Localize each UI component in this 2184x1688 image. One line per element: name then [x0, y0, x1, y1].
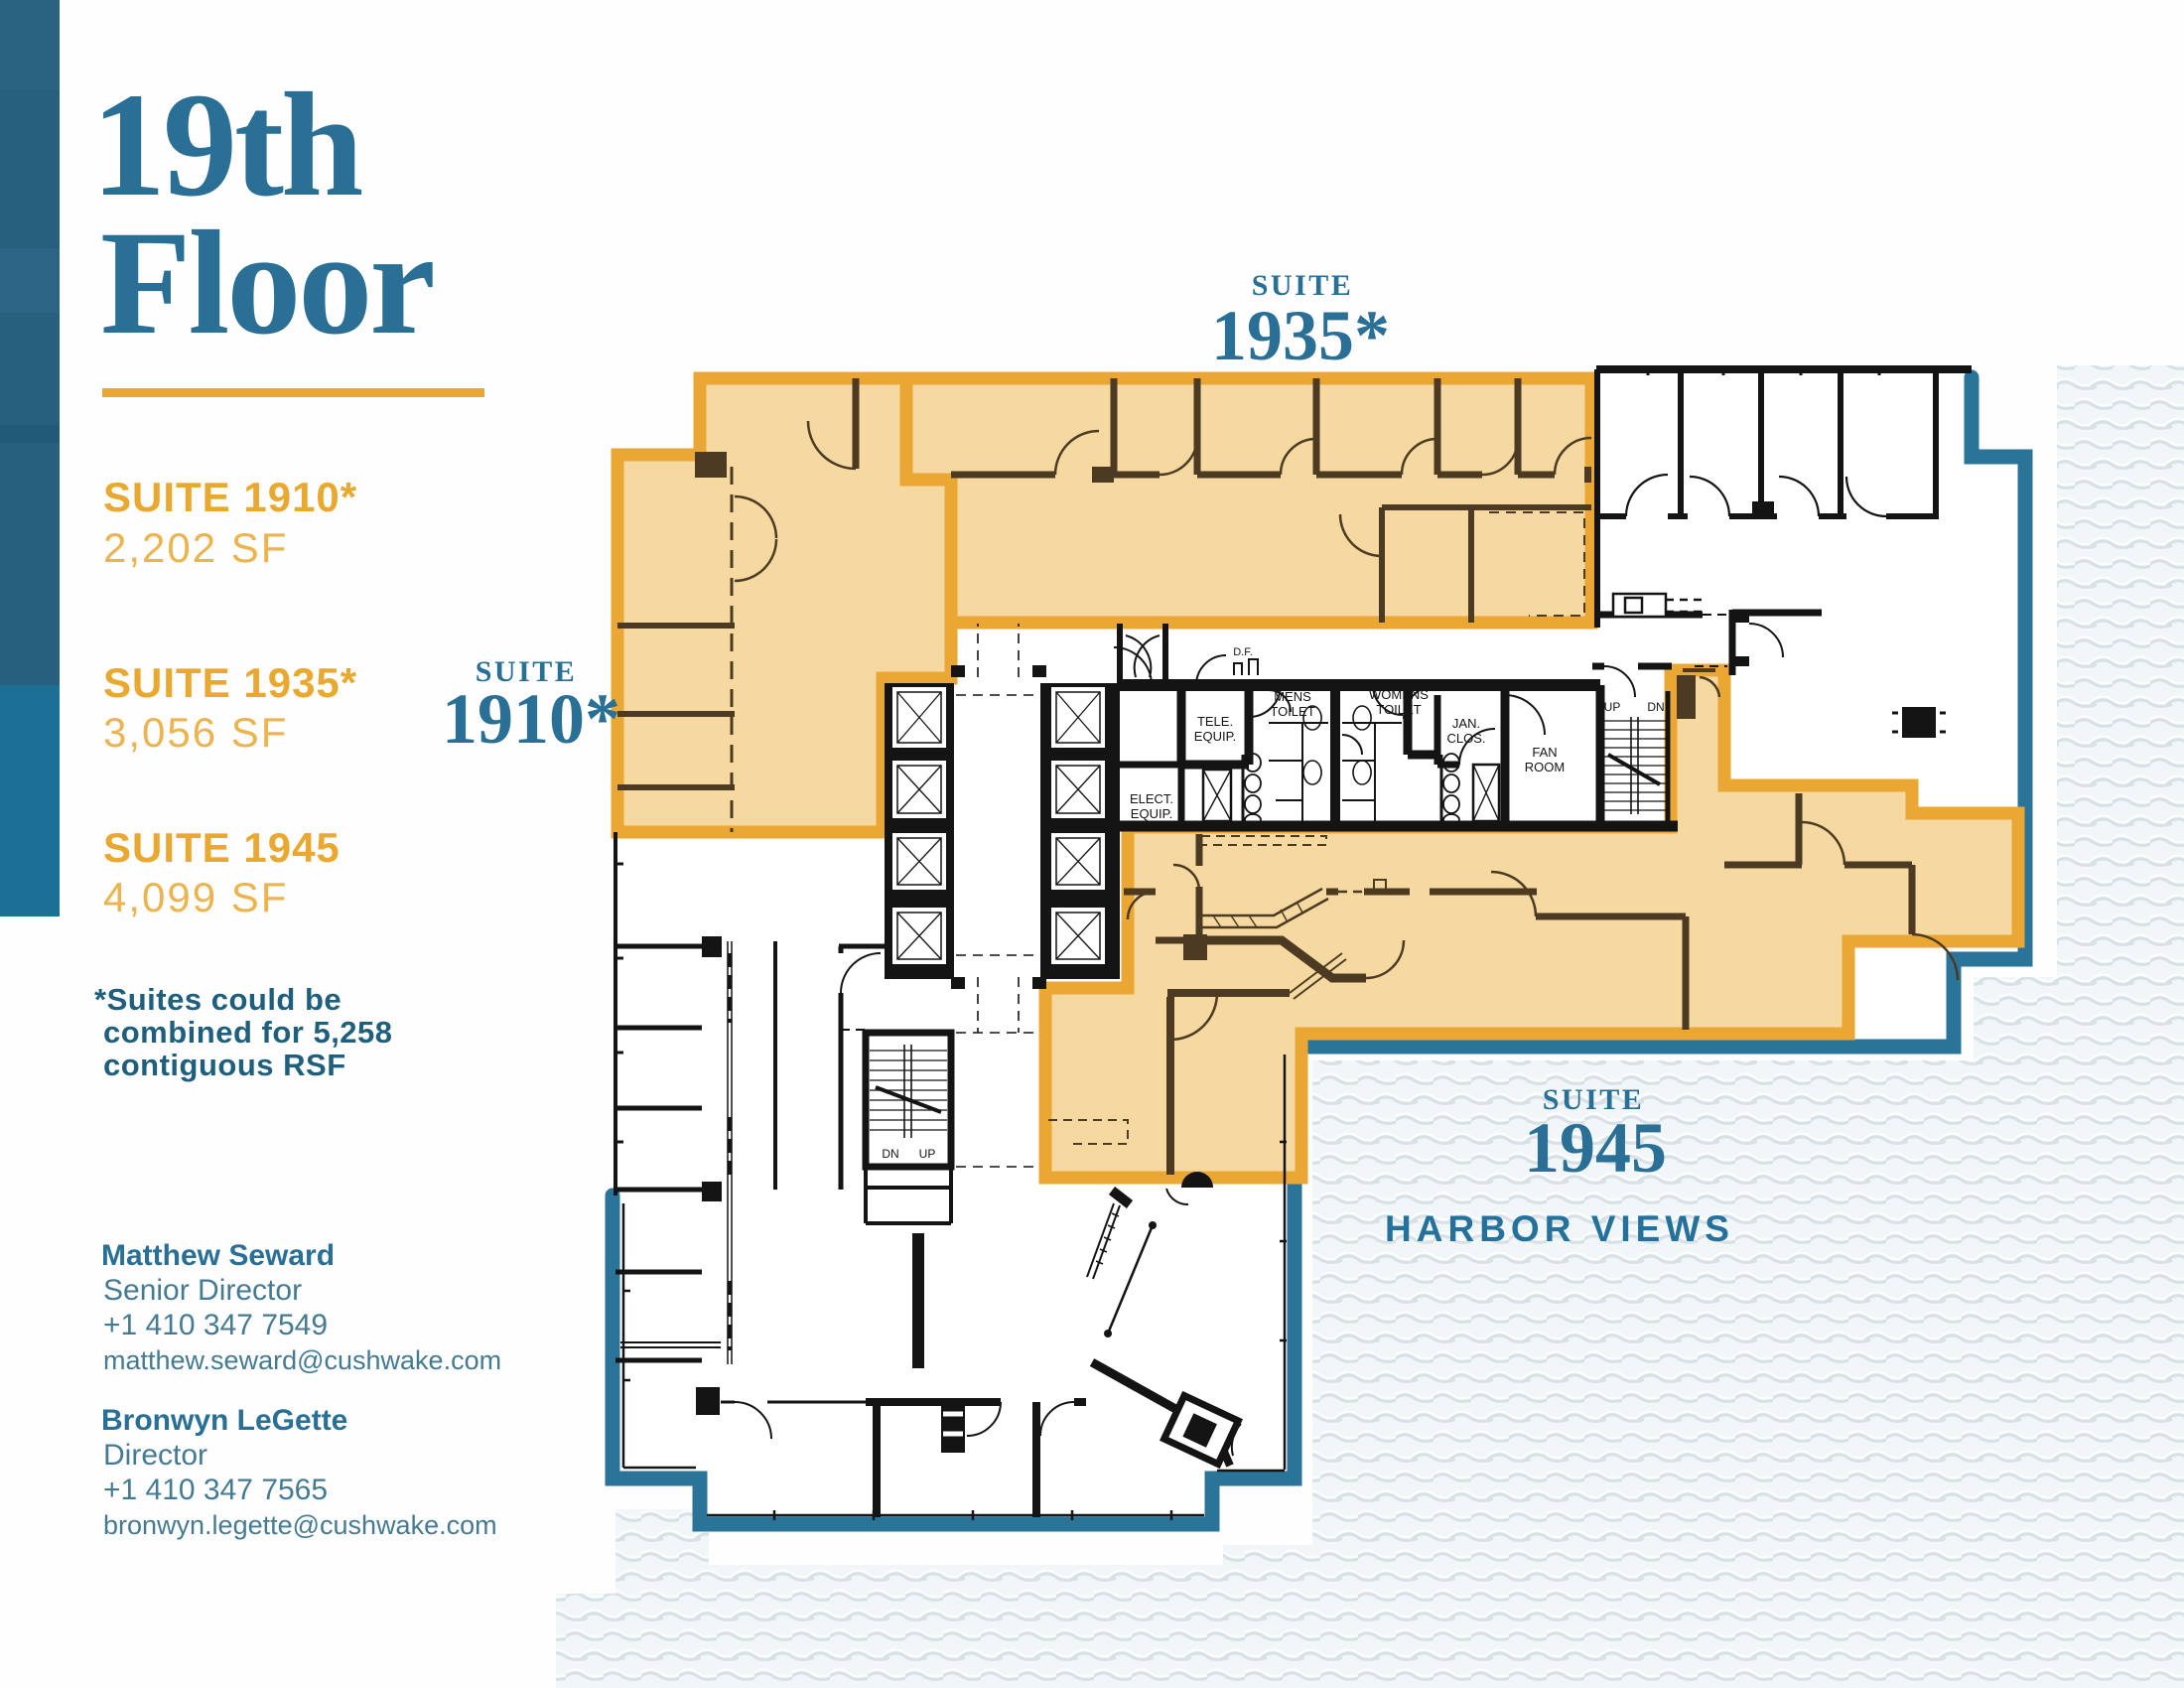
svg-text:UP: UP — [1604, 700, 1621, 714]
svg-text:matthew.seward@cushwake.com: matthew.seward@cushwake.com — [103, 1345, 501, 1375]
svg-text:Matthew Seward: Matthew Seward — [101, 1239, 335, 1272]
svg-text:DN: DN — [882, 1147, 898, 1161]
svg-text:1935*: 1935* — [1211, 296, 1390, 375]
svg-text:UP: UP — [919, 1147, 936, 1161]
svg-text:contiguous RSF: contiguous RSF — [103, 1048, 346, 1082]
svg-text:D.F.: D.F. — [1233, 646, 1253, 658]
svg-text:ROOM: ROOM — [1525, 760, 1565, 774]
svg-text:combined for 5,258: combined for 5,258 — [103, 1015, 393, 1050]
svg-text:EQUIP.: EQUIP. — [1194, 729, 1236, 744]
svg-text:SUITE 1945: SUITE 1945 — [103, 824, 341, 871]
svg-text:SUITE 1910*: SUITE 1910* — [103, 474, 357, 520]
svg-text:3,056 SF: 3,056 SF — [103, 709, 288, 756]
svg-text:ELECT.: ELECT. — [1130, 791, 1173, 806]
svg-text:+1 410 347 7565: +1 410 347 7565 — [103, 1474, 328, 1506]
svg-text:Director: Director — [103, 1439, 207, 1472]
svg-text:bronwyn.legette@cushwake.com: bronwyn.legette@cushwake.com — [103, 1510, 497, 1540]
svg-text:DN: DN — [1647, 700, 1664, 714]
svg-text:TOILET: TOILET — [1376, 702, 1421, 717]
svg-text:WOMENS: WOMENS — [1369, 687, 1429, 702]
svg-text:+1 410 347 7549: +1 410 347 7549 — [103, 1309, 328, 1341]
svg-text:JAN.: JAN. — [1452, 716, 1480, 731]
svg-text:SUITE 1935*: SUITE 1935* — [103, 659, 357, 706]
svg-text:TELE.: TELE. — [1197, 714, 1233, 729]
svg-text:Senior Director: Senior Director — [103, 1274, 302, 1307]
svg-text:4,099 SF: 4,099 SF — [103, 874, 288, 920]
svg-text:1945: 1945 — [1524, 1108, 1667, 1188]
svg-text:2,202 SF: 2,202 SF — [103, 524, 288, 571]
svg-text:1910*: 1910* — [442, 679, 620, 759]
svg-text:FAN: FAN — [1532, 745, 1557, 760]
svg-text:EQUIP.: EQUIP. — [1131, 806, 1172, 821]
svg-text:MENS: MENS — [1274, 689, 1311, 704]
svg-text:CLOS.: CLOS. — [1446, 731, 1485, 746]
svg-text:*Suites could be: *Suites could be — [94, 982, 341, 1017]
svg-text:HARBOR VIEWS: HARBOR VIEWS — [1385, 1208, 1734, 1249]
svg-text:TOILET: TOILET — [1270, 704, 1314, 719]
svg-text:Floor: Floor — [100, 201, 433, 365]
svg-text:Bronwyn LeGette: Bronwyn LeGette — [101, 1404, 347, 1437]
